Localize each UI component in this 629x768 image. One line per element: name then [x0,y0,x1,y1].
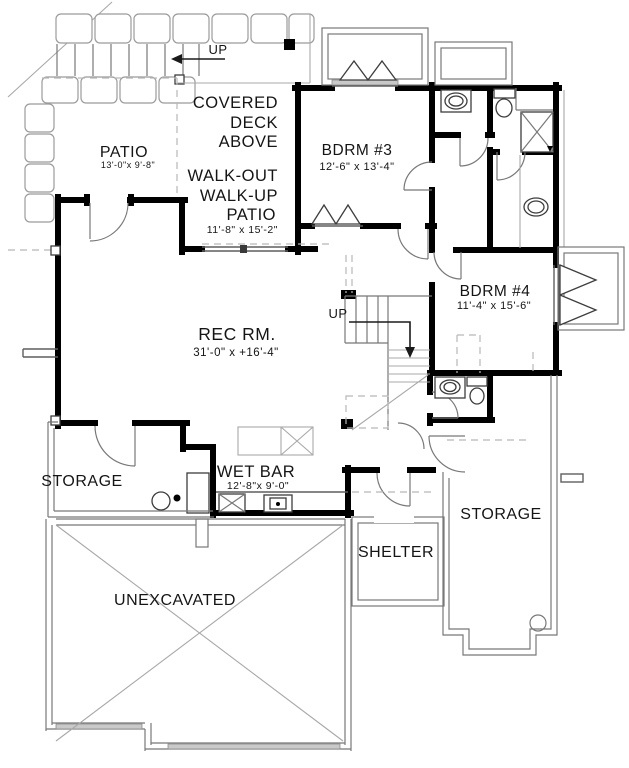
shelter-walls [352,517,444,606]
bdrm3-door [404,162,432,190]
understair-door [398,423,424,449]
toilet-tank [494,89,515,98]
bdrm3-label: BDRM #3 [322,142,393,159]
wet-bar-label: WET BAR [217,463,295,481]
stair-wall-block [341,290,356,299]
wall-marker [51,246,60,255]
toilet-room-door [497,152,525,180]
main-up-label: UP [328,306,347,321]
stair-winder-line [352,375,428,430]
patio-dims: 13'-0"x 9'-8" [101,160,155,170]
storage-right-door [429,436,465,472]
covered-deck-label-2: DECK [230,114,278,132]
bath1-door [460,138,488,166]
furnace-icon [187,473,209,513]
covered-deck-label-1: COVERED [193,94,278,112]
casement-window-icon [312,205,336,224]
main-stairs [345,255,432,430]
deck-post [284,39,295,50]
main-up-arrow [349,322,410,350]
walkup-dims: 11'-8" x 15'-2" [207,224,278,236]
labels: UP COVERED DECK ABOVE PATIO 13'-0"x 9'-8… [41,42,541,609]
floorplan-image: UP COVERED DECK ABOVE PATIO 13'-0"x 9'-8… [0,0,629,768]
wall-marker [51,416,60,425]
shelter-label: SHELTER [358,544,434,561]
toilet-icon [496,99,512,117]
bdrm4-door [434,252,461,279]
water-heater-icon [152,492,170,510]
patio-label: PATIO [100,144,148,161]
deck-up-label: UP [208,42,227,57]
rec-room-label: REC RM. [198,324,275,344]
hall-door [398,229,428,259]
slider-latch [240,245,247,253]
walkup-label-1: WALK-OUT [188,167,278,185]
patio-door [90,203,128,241]
storage-left-label: STORAGE [41,473,122,490]
wet-bar-dims: 12'-8"x 9'-0" [227,480,289,492]
toilet-icon [470,388,484,404]
unfinished-outlines [46,244,557,751]
vent-stub [561,474,583,482]
linen-closet [516,88,553,110]
shelter-door [377,473,410,506]
covered-deck-label-3: ABOVE [219,133,278,151]
floor-drain [174,495,181,502]
floorplan-drawing: UP COVERED DECK ABOVE PATIO 13'-0"x 9'-8… [0,0,629,768]
storage-left-door [95,426,135,466]
bdrm4-dims: 11'-4" x 15'-6" [457,300,531,312]
rec-room-dims: 31'-0" x +16'-4" [193,347,278,359]
walkup-label-2: WALK-UP [200,187,278,205]
bdrm3-dims: 12'-6" x 13'-4" [319,161,394,173]
unexcavated-label: UNEXCAVATED [114,592,236,609]
meter-stub [23,349,58,357]
casement-window-icon [560,265,596,295]
storage-right-label: STORAGE [460,506,541,523]
casement-window-icon [340,61,368,80]
island [238,427,313,455]
bdrm4-label: BDRM #4 [460,283,531,300]
walkup-label-3: PATIO [226,206,276,224]
toilet-tank [467,377,487,386]
support-pier [196,519,208,547]
